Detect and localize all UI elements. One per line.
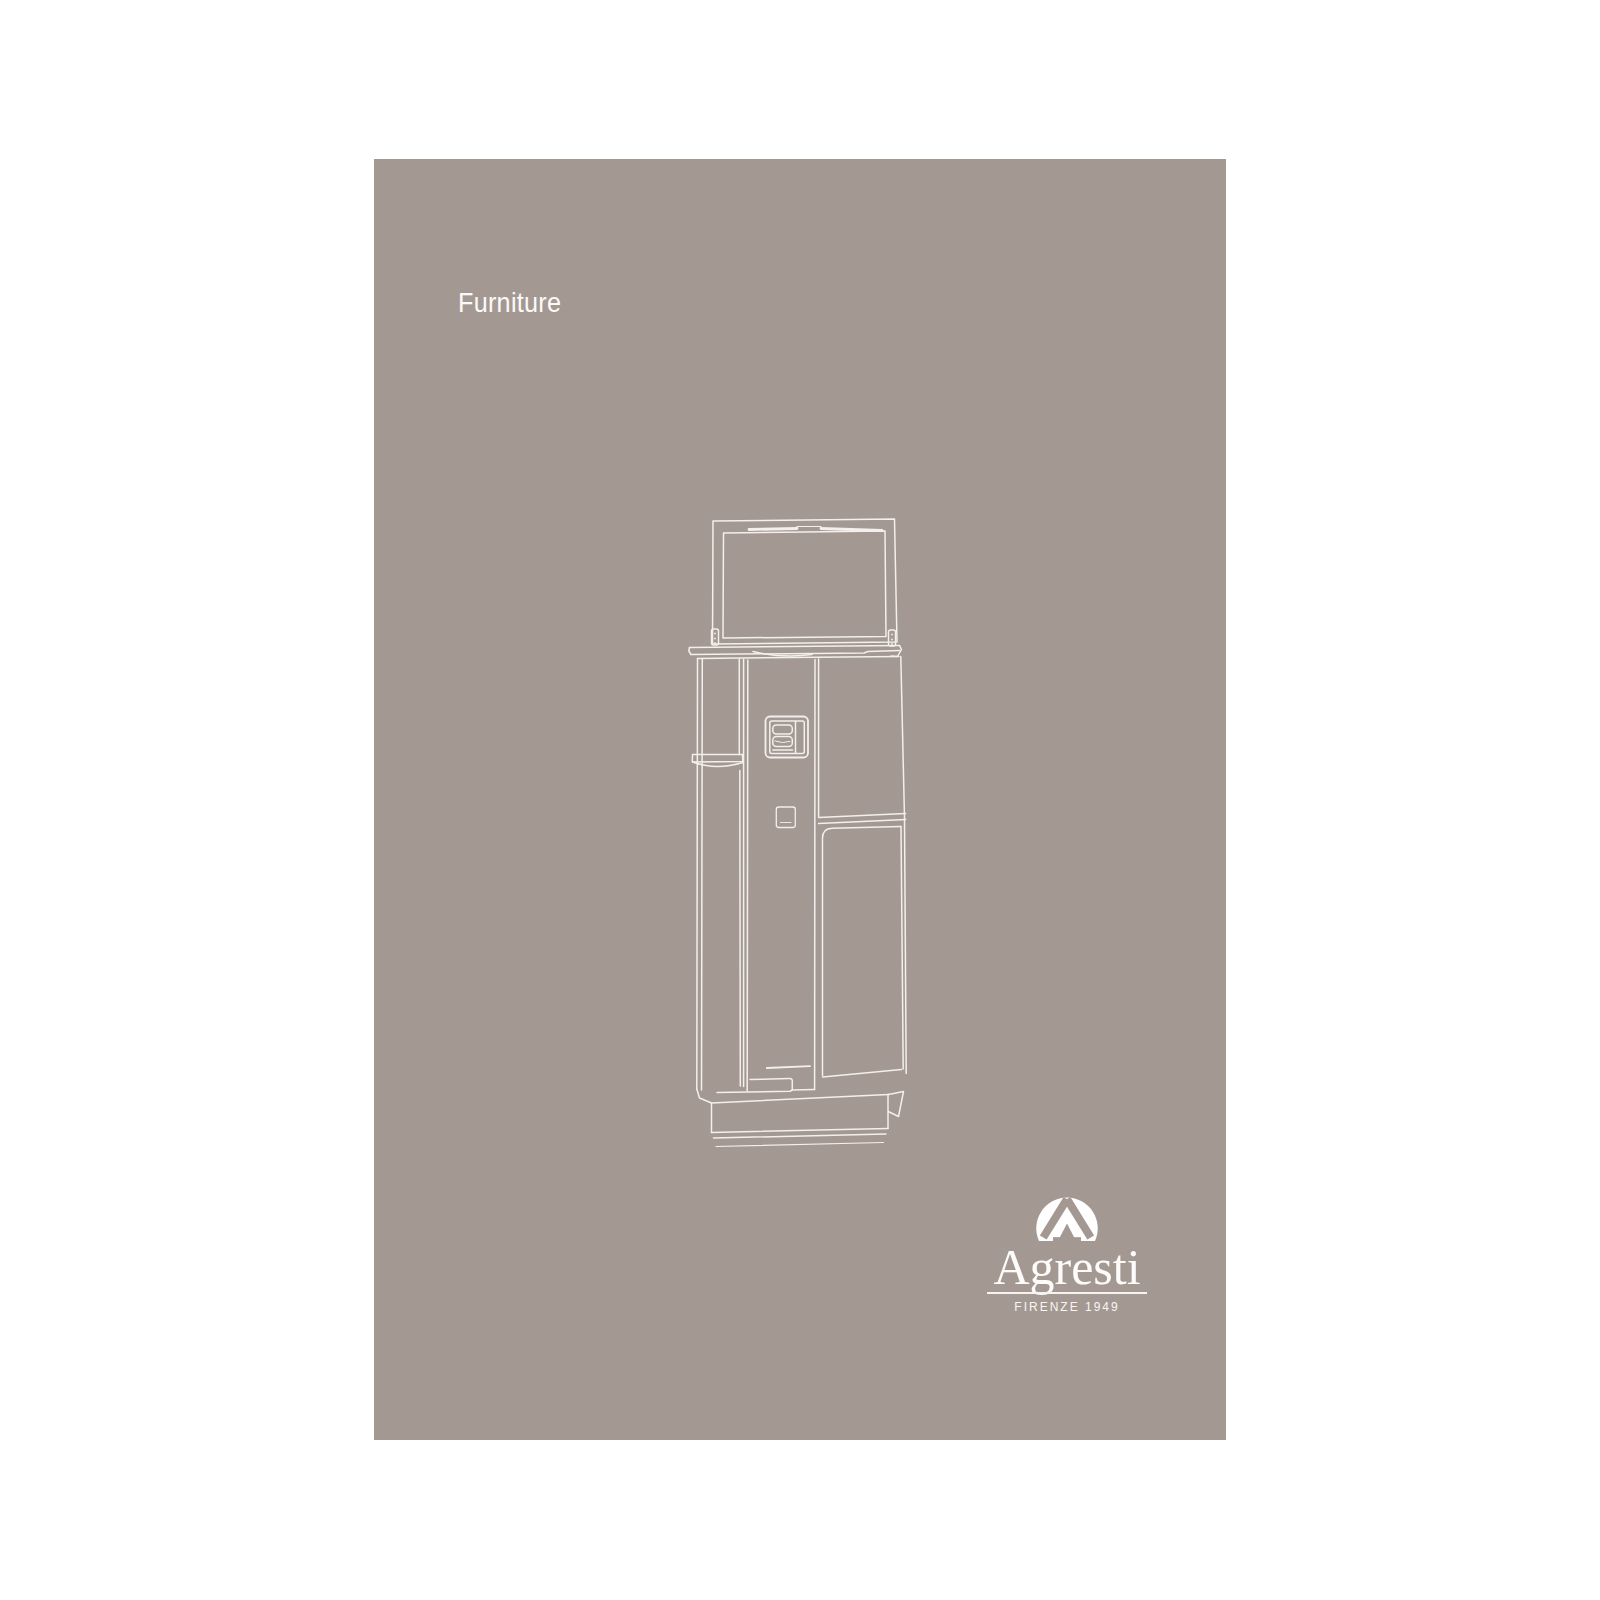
cabinet-base xyxy=(697,1066,904,1146)
brand-mark-icon xyxy=(1032,1197,1102,1241)
screen-lid xyxy=(712,519,898,646)
keypad-detail xyxy=(766,717,809,758)
category-label: Furniture xyxy=(458,287,561,319)
safe-illustration xyxy=(683,503,913,1153)
brochure-cover-page: Furniture xyxy=(374,159,1226,1440)
door-brand-plate xyxy=(776,807,795,828)
brand-name: Agresti xyxy=(985,1240,1149,1295)
brand-logo: Agresti FIRENZE 1949 xyxy=(985,1194,1149,1324)
cabinet-top-ledge xyxy=(689,646,902,657)
brand-rule xyxy=(987,1292,1147,1294)
brand-tagline: FIRENZE 1949 xyxy=(985,1300,1149,1314)
